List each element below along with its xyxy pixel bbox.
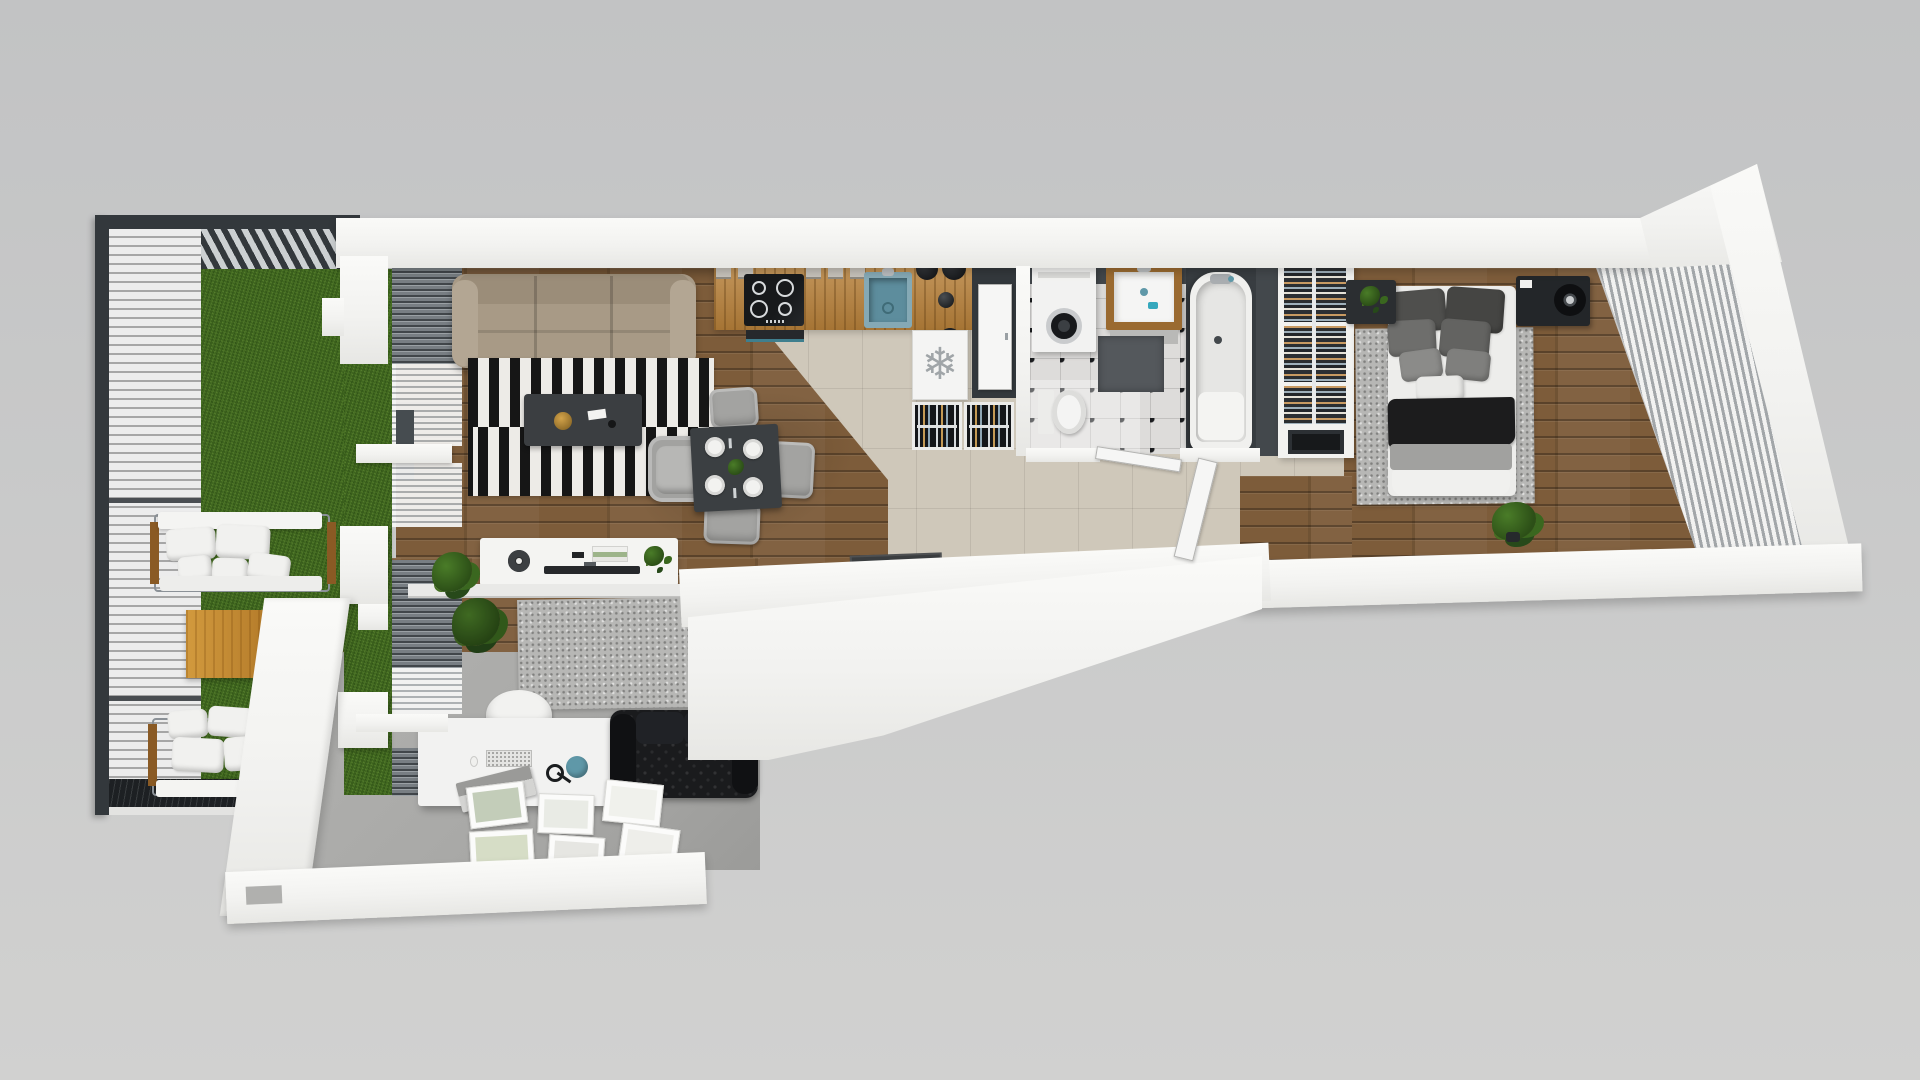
wall-right-slanted: [1700, 150, 1870, 590]
apartment-floorplan-render: ❄: [0, 0, 1920, 1080]
wall-entry-bath-divider: [1016, 266, 1030, 456]
walls: [0, 0, 1920, 1080]
wall-notch-left: [358, 604, 388, 630]
wall-sill-notch: [322, 298, 344, 336]
wall-bottom-right: [1239, 543, 1862, 608]
wall-sill-beam-office: [356, 714, 448, 732]
wall-top: [336, 218, 1652, 268]
wall-nw-corner: [340, 256, 388, 364]
wall-bath-bottom-left: [1026, 448, 1100, 462]
wall-step: [246, 885, 283, 904]
wall-sill-beam: [356, 444, 452, 463]
wall-block-left: [340, 526, 388, 604]
wall-bath-bottom-right: [1180, 448, 1260, 462]
